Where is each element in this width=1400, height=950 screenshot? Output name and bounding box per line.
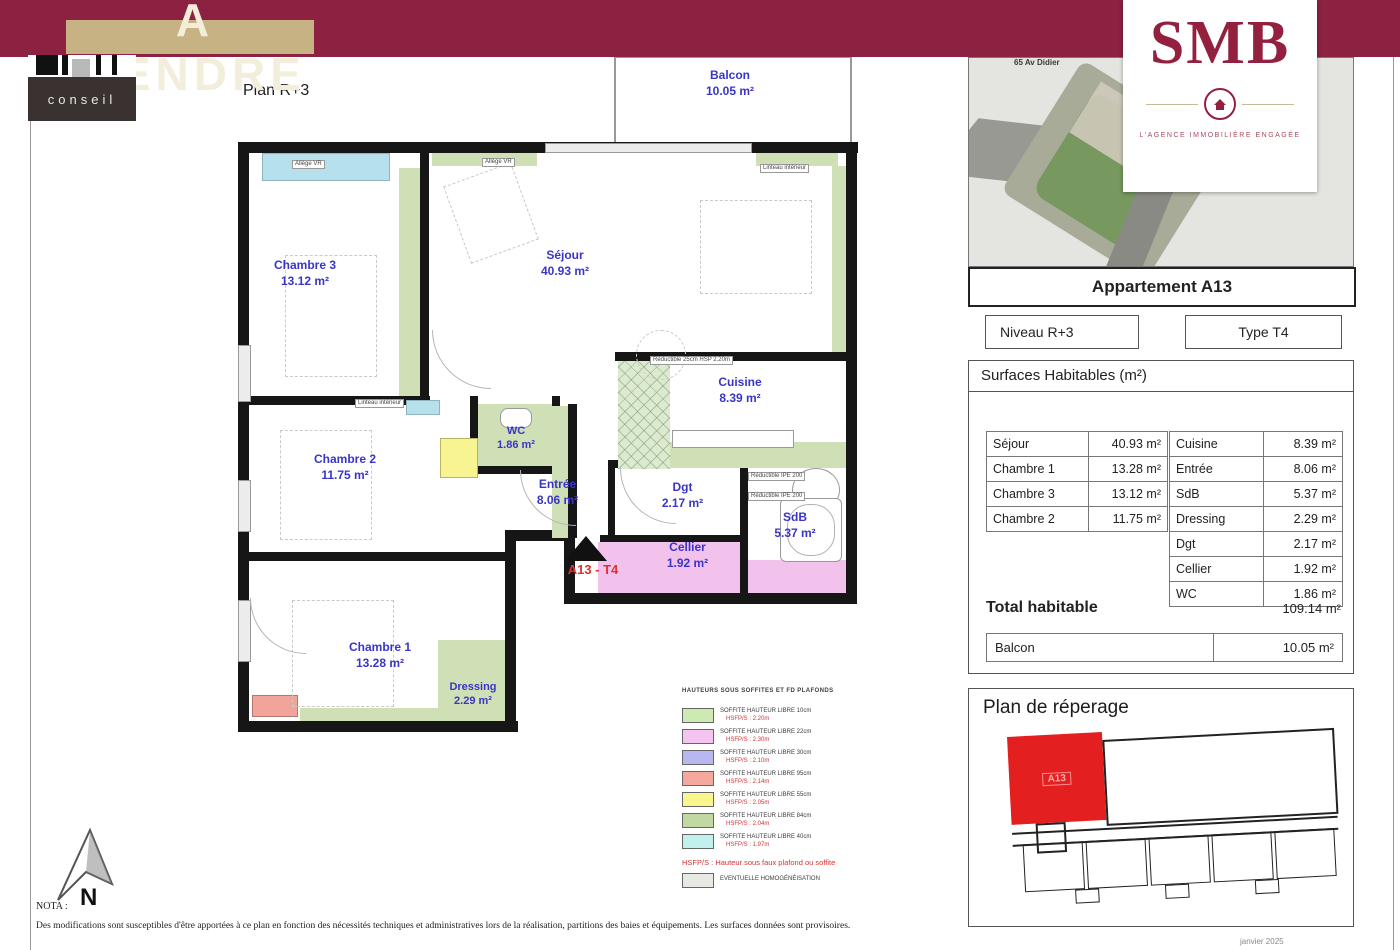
bed-outline	[280, 430, 372, 540]
table-row: Chambre 3 13.12 m²	[987, 482, 1167, 507]
wc-name: WC	[507, 425, 525, 437]
logo-bar	[62, 55, 68, 75]
wall	[238, 721, 518, 732]
legend-label: SOFFITE HAUTEUR LIBRE 30cm	[720, 750, 811, 756]
nota-title: NOTA :	[36, 901, 68, 912]
wall	[846, 142, 857, 604]
reperage-unit-cell	[1274, 828, 1336, 879]
house-icon	[1204, 88, 1236, 120]
page: A VENDRE conseil Plan R+3 Balcon 10.05 m…	[0, 0, 1400, 950]
room-label-dgt: Dgt 2.17 m²	[630, 480, 735, 511]
reperage-title: Plan de réperage	[969, 689, 1353, 719]
row-area: 2.29 m²	[1264, 512, 1342, 526]
agency-address: 65 Av Didier	[1014, 58, 1060, 67]
divider-line	[1242, 104, 1294, 105]
legend-swatch	[682, 708, 714, 723]
legend-sublabel: HSFP/S : 2.05m	[726, 800, 769, 806]
legend-swatch	[682, 750, 714, 765]
window	[238, 345, 251, 402]
conseil-logo: conseil	[28, 55, 136, 121]
reperage-unit-label: A13	[1042, 771, 1071, 785]
reperage-unit-cell	[1023, 841, 1085, 892]
row-area: 8.06 m²	[1264, 462, 1342, 476]
legend-swatch-extra	[682, 873, 714, 888]
room-label-entree: Entrée 8.06 m²	[505, 477, 610, 508]
table-row: Chambre 1 13.28 m²	[987, 457, 1167, 482]
row-room: Cuisine	[1170, 432, 1264, 456]
agency-name: SMB	[1123, 12, 1317, 74]
room-label-balcon: Balcon 10.05 m²	[660, 68, 800, 99]
balcon-area: 10.05 m²	[706, 84, 754, 98]
type-label: Type T4	[1238, 324, 1288, 340]
row-room: Dressing	[1170, 507, 1264, 531]
page-frame-left	[30, 0, 31, 950]
nota-text: Des modifications sont susceptibles d'êt…	[36, 921, 1366, 931]
row-room: Dgt	[1170, 532, 1264, 556]
annotation-linteau: Linteau intérieur	[355, 399, 404, 408]
legend-sublabel: HSFP/S : 2.20m	[726, 716, 769, 722]
row-room: Chambre 2	[987, 507, 1089, 531]
sdb-area: 5.37 m²	[774, 526, 815, 540]
cuisine-name: Cuisine	[718, 375, 761, 389]
row-area: 11.75 m²	[1089, 512, 1167, 526]
duct-shaft	[440, 438, 478, 478]
entree-area: 8.06 m²	[537, 493, 578, 507]
sdb-floor-strip	[748, 560, 846, 593]
surfaces-title: Surfaces Habitables (m²)	[969, 361, 1353, 392]
legend-label: SOFFITE HAUTEUR LIBRE 95cm	[720, 771, 811, 777]
cellier-name: Cellier	[669, 540, 706, 554]
table-row: Entrée 8.06 m²	[1170, 457, 1342, 482]
legend-swatch	[682, 729, 714, 744]
conseil-logo-base: conseil	[28, 77, 136, 121]
row-area: 2.17 m²	[1264, 537, 1342, 551]
reperage-unit-cell	[1211, 831, 1273, 882]
apartment-title: Appartement A13	[1092, 277, 1232, 297]
legend-label: SOFFITE HAUTEUR LIBRE 40cm	[720, 834, 811, 840]
table-row: Chambre 2 11.75 m²	[987, 507, 1167, 531]
soffit-strip	[399, 168, 420, 396]
total-value: 109.14 m²	[1221, 601, 1341, 616]
window	[238, 480, 251, 532]
row-area: 1.86 m²	[1264, 587, 1342, 601]
reperage-unit-cell	[1148, 835, 1210, 886]
legend-sublabel: HSFP/S : 2.10m	[726, 758, 769, 764]
entrance-triangle-icon	[565, 536, 607, 561]
room-label-chambre3: Chambre 3 13.12 m²	[240, 258, 370, 289]
door-swing	[432, 330, 491, 389]
table-row: Cuisine 8.39 m²	[1170, 432, 1342, 457]
legend-label-extra: EVENTUELLE HOMOGÉNÉISATION	[720, 876, 820, 882]
chambre1-name: Chambre 1	[349, 640, 411, 654]
agency-tagline: L'AGENCE IMMOBILIÈRE ENGAGÉE	[1123, 132, 1317, 139]
balcony-right-line	[850, 57, 852, 145]
compass-n-label: N	[80, 884, 97, 912]
surfaces-table-right: Cuisine 8.39 m² Entrée 8.06 m² SdB 5.37 …	[1169, 431, 1343, 607]
row-room: Séjour	[987, 432, 1089, 456]
window-sill-chambre2	[406, 400, 440, 415]
chambre1-area: 13.28 m²	[356, 656, 404, 670]
row-room: Chambre 1	[987, 457, 1089, 481]
row-area: 8.39 m²	[1264, 437, 1342, 451]
row-room: SdB	[1170, 482, 1264, 506]
reperage-box: Plan de réperage A13	[968, 688, 1354, 927]
legend-label: SOFFITE HAUTEUR LIBRE 10cm	[720, 708, 811, 714]
reperage-unit-cell	[1086, 838, 1148, 889]
balcon-row-value: 10.05 m²	[1214, 640, 1342, 655]
annotation-linteau: Linteau intérieur	[760, 164, 809, 173]
surfaces-table-left: Séjour 40.93 m² Chambre 1 13.28 m² Chamb…	[986, 431, 1168, 532]
footer-date: janvier 2025	[1240, 937, 1284, 946]
annotation-allege: Allège VR	[292, 160, 325, 169]
row-area: 5.37 m²	[1264, 487, 1342, 501]
room-label-chambre2: Chambre 2 11.75 m²	[280, 452, 410, 483]
legend-swatch	[682, 834, 714, 849]
dgt-area: 2.17 m²	[662, 496, 703, 510]
page-frame-right	[1393, 0, 1394, 950]
reperage-plan: A13	[1007, 720, 1345, 907]
window	[238, 600, 251, 662]
legend-swatch	[682, 792, 714, 807]
reperage-highlight-unit: A13	[1007, 732, 1106, 825]
legend-sublabel: HSFP/S : 2.04m	[726, 821, 769, 827]
wall	[570, 593, 857, 604]
niveau-box: Niveau R+3	[985, 315, 1139, 349]
legend-label: SOFFITE HAUTEUR LIBRE 84cm	[720, 813, 811, 819]
dining-table-outline	[700, 200, 812, 294]
divider-line	[1146, 104, 1198, 105]
conseil-logo-bars	[28, 55, 136, 77]
sejour-area: 40.93 m²	[541, 264, 589, 278]
balcon-name: Balcon	[710, 68, 750, 82]
table-row: Dressing 2.29 m²	[1170, 507, 1342, 532]
room-label-chambre1: Chambre 1 13.28 m²	[315, 640, 445, 671]
annotation-reductible: Réductible 25cm HSP 2.20m	[650, 356, 733, 365]
legend-swatch	[682, 771, 714, 786]
dressing-area: 2.29 m²	[454, 695, 492, 707]
house-icon-glyph	[1214, 99, 1226, 110]
row-room: Chambre 3	[987, 482, 1089, 506]
reperage-stub	[1165, 884, 1190, 899]
annotation-allege: Allège VR	[482, 158, 515, 167]
row-area: 13.12 m²	[1089, 487, 1167, 501]
balcony-slider	[545, 143, 752, 153]
reperage-stub	[1075, 888, 1100, 903]
door-swing	[250, 598, 306, 654]
chambre3-name: Chambre 3	[274, 258, 336, 272]
wc-area: 1.86 m²	[497, 439, 535, 451]
row-area: 40.93 m²	[1089, 437, 1167, 451]
row-room: Entrée	[1170, 457, 1264, 481]
room-label-cellier: Cellier 1.92 m²	[630, 540, 745, 571]
row-area: 13.28 m²	[1089, 462, 1167, 476]
legend-sublabel: HSFP/S : 1.97m	[726, 842, 769, 848]
entree-name: Entrée	[539, 477, 576, 491]
row-area: 1.92 m²	[1264, 562, 1342, 576]
entrance-marker-label: A13 - T4	[548, 562, 638, 577]
type-box: Type T4	[1185, 315, 1342, 349]
balcon-row-label: Balcon	[987, 634, 1214, 661]
soffit-strip	[832, 166, 846, 352]
room-label-dressing: Dressing 2.29 m²	[428, 680, 518, 709]
balcony-top-line	[614, 57, 852, 58]
logo-bar	[96, 55, 101, 75]
legend-sublabel: HSFP/S : 2.14m	[726, 779, 769, 785]
legend-sublabel: HSFP/S : 2.30m	[726, 737, 769, 743]
legend-title: HAUTEURS SOUS SOFFITES ET FD PLAFONDS	[682, 688, 833, 694]
conseil-logo-text: conseil	[48, 92, 116, 107]
sdb-name: SdB	[783, 510, 807, 524]
annotation-reductible: Réductible IPE 200	[748, 472, 805, 481]
room-label-cuisine: Cuisine 8.39 m²	[680, 375, 800, 406]
wall	[420, 142, 429, 404]
chambre3-area: 13.12 m²	[281, 274, 329, 288]
balcon-row-box: Balcon 10.05 m²	[986, 633, 1343, 662]
table-row: Dgt 2.17 m²	[1170, 532, 1342, 557]
room-label-wc: WC 1.86 m²	[478, 424, 554, 453]
cellier-area: 1.92 m²	[667, 556, 708, 570]
total-label: Total habitable	[986, 599, 1098, 617]
niveau-label: Niveau R+3	[986, 324, 1074, 340]
legend-swatch	[682, 813, 714, 828]
apartment-title-box: Appartement A13	[968, 267, 1356, 307]
reperage-stub	[1255, 879, 1280, 894]
balcony-left-line	[614, 57, 616, 145]
logo-bar	[36, 55, 58, 75]
wall	[238, 552, 516, 561]
chambre2-area: 11.75 m²	[321, 468, 368, 482]
reperage-big-unit	[1102, 728, 1338, 826]
surfaces-box: Surfaces Habitables (m²) Séjour 40.93 m²…	[968, 360, 1354, 674]
kitchen-counter	[672, 430, 794, 448]
legend-note: HSFP/S : Hauteur sous faux plafond ou so…	[682, 858, 835, 867]
legend-label: SOFFITE HAUTEUR LIBRE 22cm	[720, 729, 811, 735]
row-room: Cellier	[1170, 557, 1264, 581]
annotation-reductible: Réductible IPE 200	[748, 492, 805, 501]
table-row: Cellier 1.92 m²	[1170, 557, 1342, 582]
cuisine-area: 8.39 m²	[719, 391, 760, 405]
legend-label: SOFFITE HAUTEUR LIBRE 55cm	[720, 792, 811, 798]
dressing-name: Dressing	[449, 681, 496, 693]
agency-card: SMB L'AGENCE IMMOBILIÈRE ENGAGÉE	[1123, 0, 1317, 192]
logo-square	[72, 59, 90, 77]
agency-divider	[1123, 88, 1317, 120]
sejour-name: Séjour	[546, 248, 583, 262]
table-row: Séjour 40.93 m²	[987, 432, 1167, 457]
room-label-sejour: Séjour 40.93 m²	[505, 248, 625, 279]
room-label-sdb: SdB 5.37 m²	[745, 510, 845, 541]
dgt-name: Dgt	[673, 480, 693, 494]
window-sill-chambre3	[262, 153, 390, 181]
logo-bar	[112, 55, 117, 75]
table-row: SdB 5.37 m²	[1170, 482, 1342, 507]
coffee-table-outline	[636, 330, 686, 380]
chambre2-name: Chambre 2	[314, 452, 376, 466]
